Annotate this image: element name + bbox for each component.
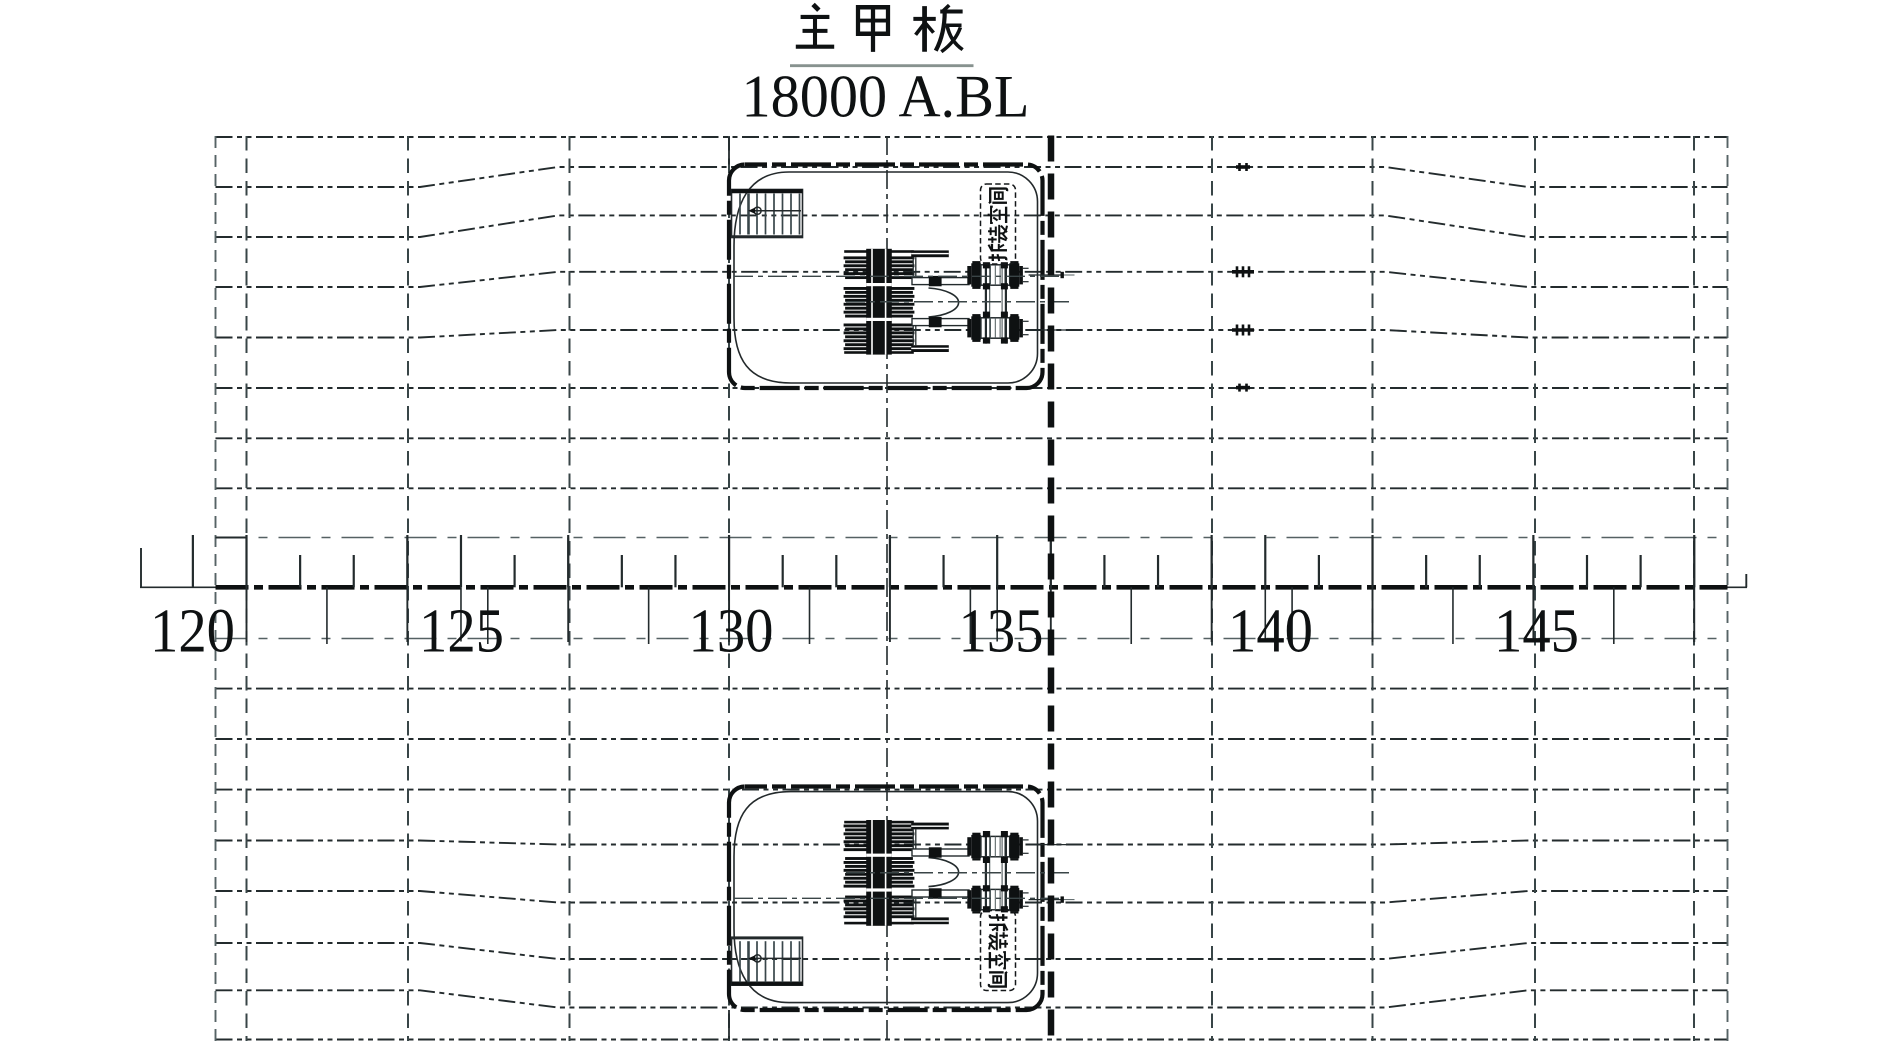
svg-text:145: 145 <box>1494 598 1579 666</box>
svg-text:135: 135 <box>959 598 1044 666</box>
svg-text:18000 A.BL: 18000 A.BL <box>742 64 1030 131</box>
svg-text:120: 120 <box>150 598 235 666</box>
svg-text:125: 125 <box>419 598 504 666</box>
svg-text:130: 130 <box>689 598 774 666</box>
svg-text:140: 140 <box>1228 598 1313 666</box>
